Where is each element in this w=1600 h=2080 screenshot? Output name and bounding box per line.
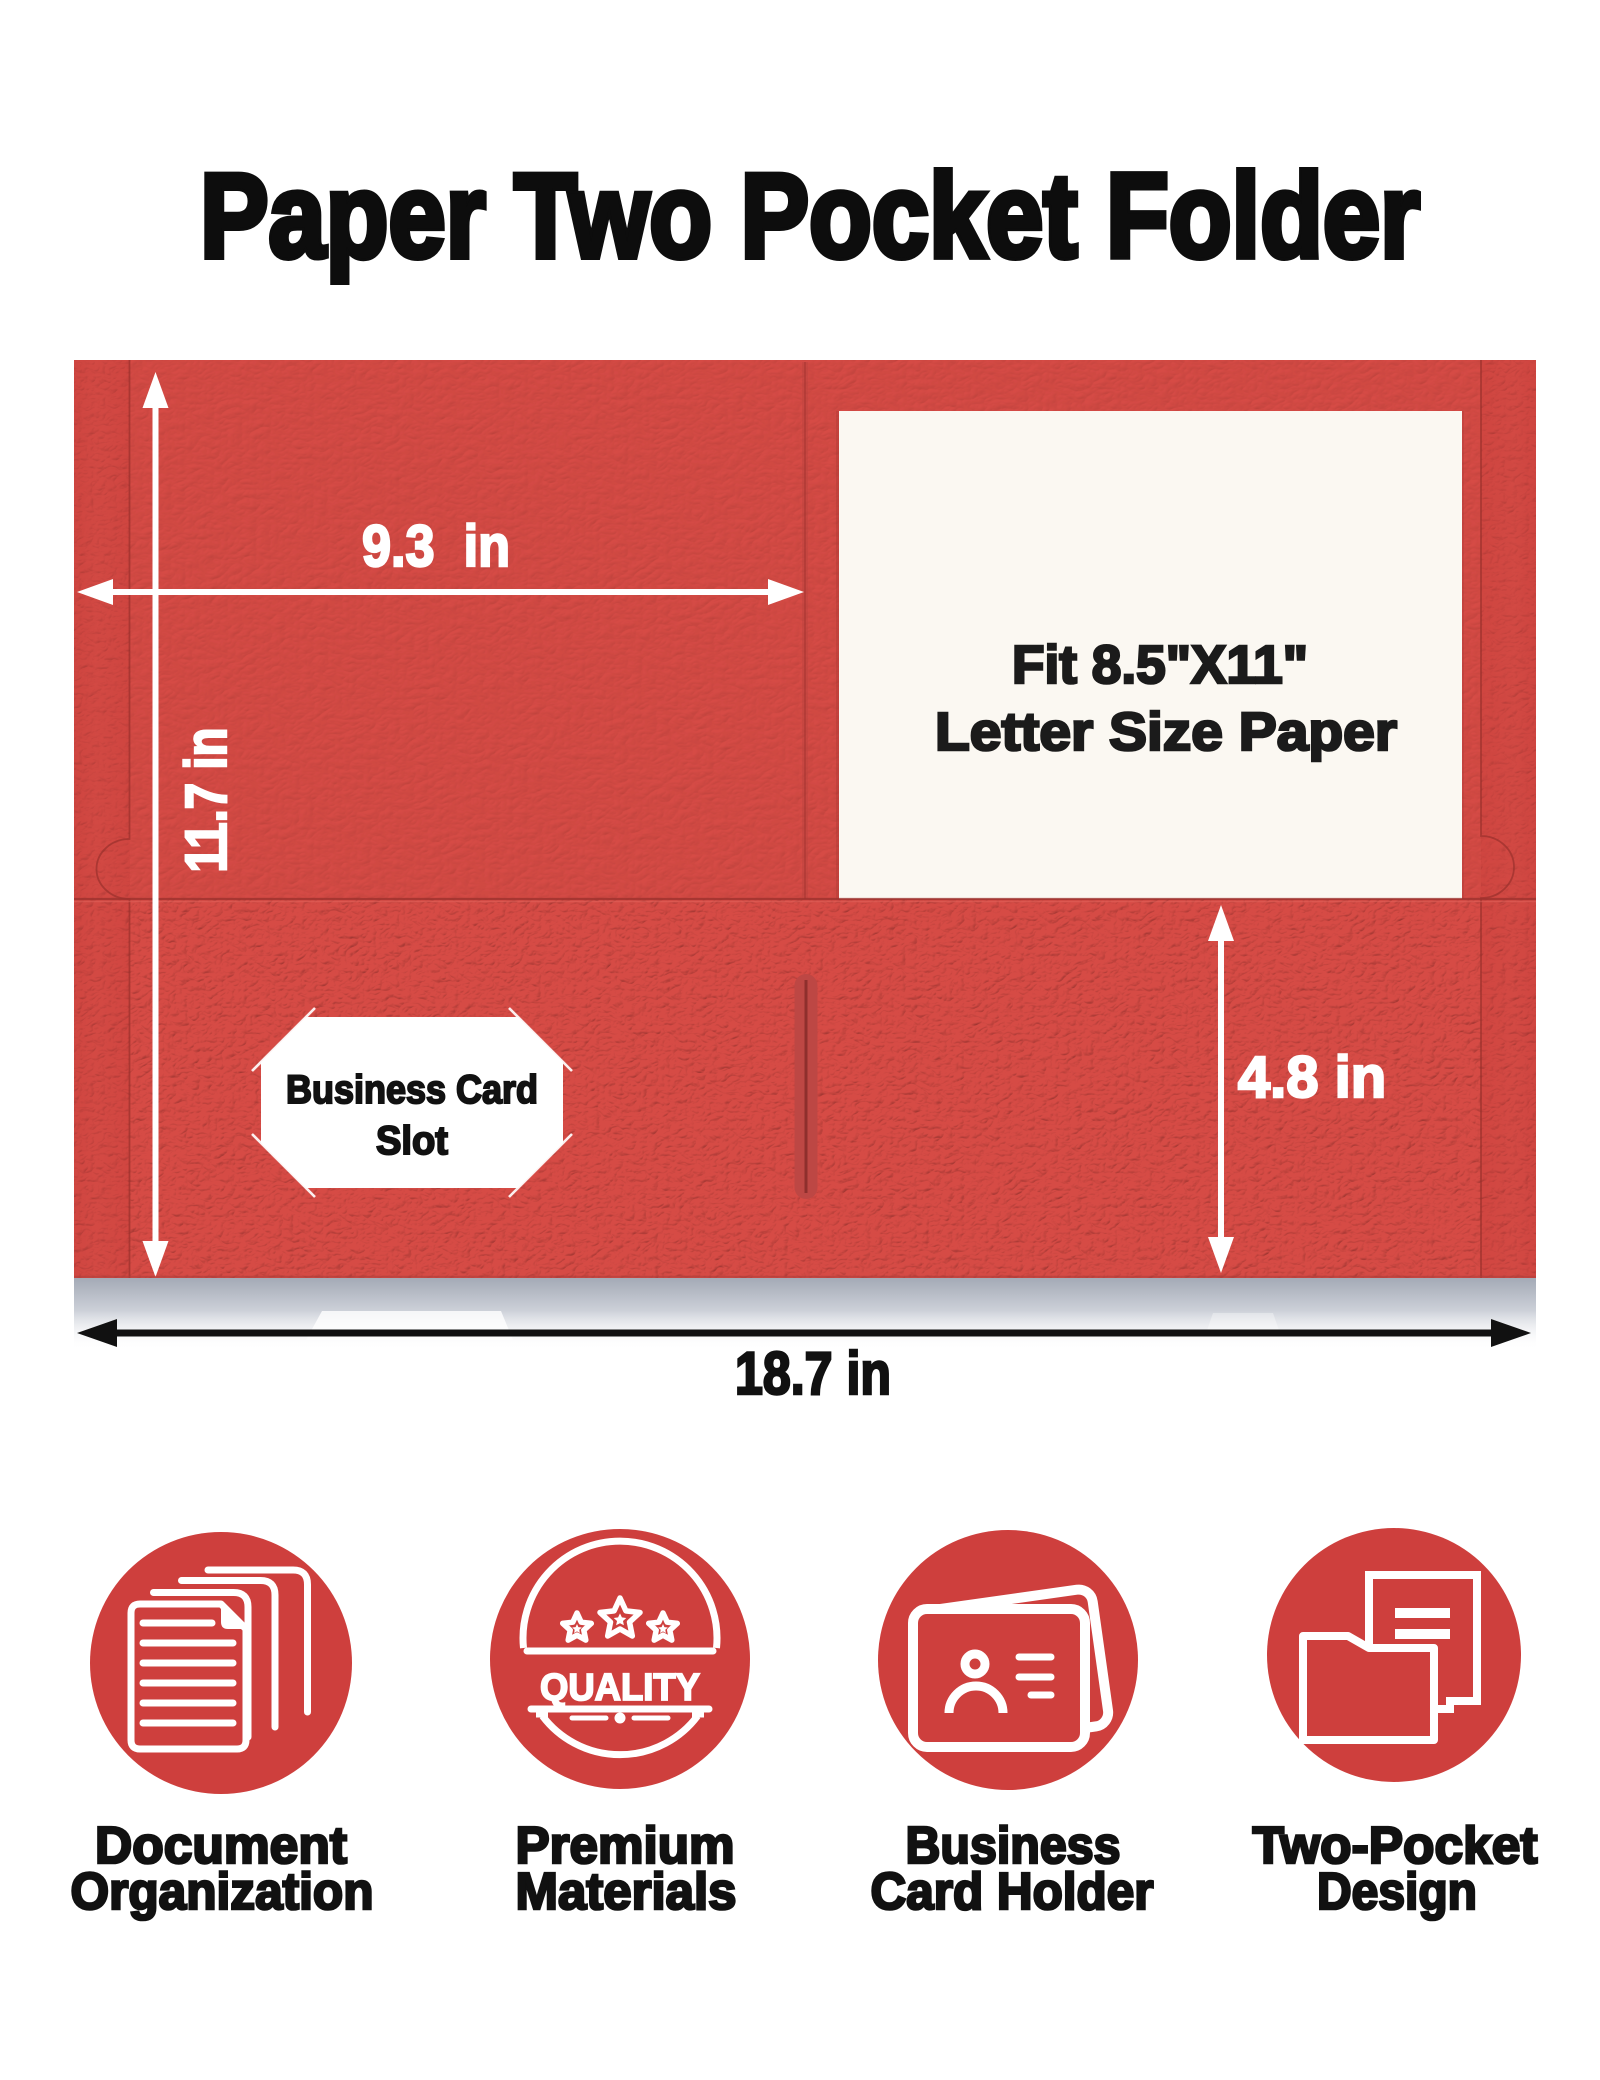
svg-text:Card Holder: Card Holder bbox=[871, 1863, 1154, 1921]
svg-text:Design: Design bbox=[1317, 1863, 1477, 1921]
svg-text:9.3 in: 9.3 in bbox=[362, 514, 510, 579]
svg-text:Fit 8.5"X11": Fit 8.5"X11" bbox=[1012, 635, 1308, 695]
svg-text:Materials: Materials bbox=[516, 1863, 737, 1921]
svg-text:Letter Size Paper: Letter Size Paper bbox=[935, 702, 1397, 762]
svg-text:Business Card: Business Card bbox=[286, 1068, 538, 1112]
svg-text:11.7 in: 11.7 in bbox=[174, 728, 239, 873]
svg-text:4.8 in: 4.8 in bbox=[1238, 1045, 1386, 1110]
svg-text:Organization: Organization bbox=[71, 1863, 374, 1921]
svg-text:18.7 in: 18.7 in bbox=[735, 1340, 891, 1407]
svg-text:Paper Two Pocket Folder: Paper Two Pocket Folder bbox=[200, 149, 1420, 283]
svg-text:QUALITY: QUALITY bbox=[540, 1667, 700, 1709]
svg-text:Slot: Slot bbox=[376, 1119, 448, 1163]
